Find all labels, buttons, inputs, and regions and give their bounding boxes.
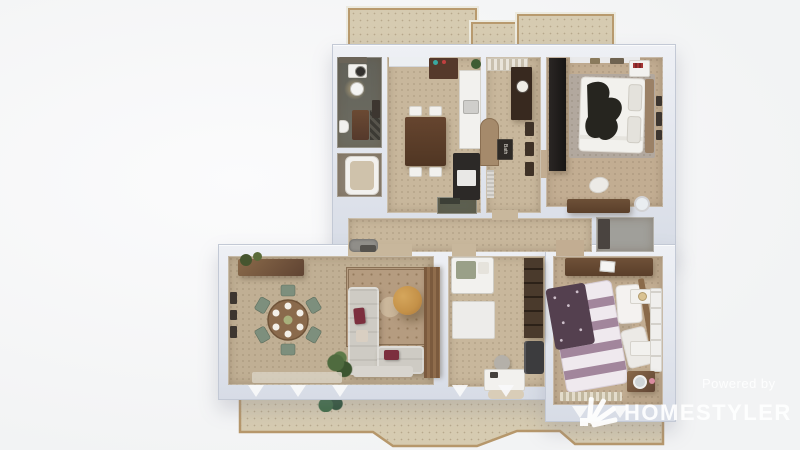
living-wall-frame [230, 310, 237, 320]
bedroom1-bed [577, 75, 654, 158]
nursery-dresser-toy [490, 372, 498, 378]
tv-partition-panel [424, 267, 440, 378]
bathtub-basin [350, 161, 374, 190]
bedroom2-wall-shelves [650, 288, 662, 372]
living-wall-frame [230, 326, 237, 338]
kitchen-window-curtain [389, 57, 430, 67]
kettle [442, 60, 446, 64]
balcony-plant [318, 398, 344, 412]
corridor-pet-bed-base [360, 245, 376, 252]
bath-sign-text: Bath [502, 144, 508, 154]
closet-gray-shoerack [598, 219, 610, 249]
living-window-rug [252, 372, 342, 383]
hall-shelf [525, 142, 534, 156]
kitchen-chair [429, 106, 442, 116]
watermark: Powered by HOMESTYLER [560, 370, 790, 440]
kitchen-chair [409, 167, 422, 177]
watermark-powered-by: Powered by [702, 376, 776, 391]
sofa-cushion [353, 307, 366, 324]
sideboard-plant [240, 254, 252, 266]
crib-blanket [456, 261, 476, 279]
kitchen-table [405, 117, 446, 166]
bedroom1-wall-art [610, 58, 624, 64]
oven-door [457, 170, 476, 186]
washer-drum [355, 66, 366, 77]
nightstand-lamp [638, 292, 647, 301]
kitchen-chair [429, 167, 442, 177]
bath-vanity [352, 110, 369, 140]
hall-clock-cabinet [511, 67, 532, 120]
doorway-hall-bedroom1 [541, 150, 547, 178]
hall-radiator [487, 170, 494, 198]
toilet [339, 120, 349, 133]
bedroom1-mirror [634, 196, 650, 212]
doorway-hall-corridor [492, 210, 518, 220]
homestyler-fan-logo [578, 392, 620, 430]
bedroom1-wall-art [590, 58, 600, 64]
bedroom2-laptop [600, 260, 616, 272]
dining-set-round [252, 284, 324, 356]
watermark-brand: HOMESTYLER [624, 400, 792, 426]
sofa-cushion [384, 350, 399, 360]
bedroom1-desk [567, 199, 630, 213]
bedroom1-wardrobe [549, 58, 566, 171]
crib-pillow [478, 262, 489, 274]
laundry-shelf [339, 57, 367, 63]
kitchen-chair [409, 106, 422, 116]
bedroom1-wall-frame [656, 96, 662, 106]
bedroom1-wall-frame [656, 112, 662, 126]
coffee-machine [433, 60, 438, 65]
bedroom2-nightstand [630, 341, 652, 356]
hanging-egg-chair [393, 286, 422, 315]
sideboard-plant [253, 252, 262, 261]
closet-green-shelf [440, 198, 460, 204]
bedroom1-headboard [645, 79, 654, 153]
bath-sign: Bath [497, 139, 513, 160]
living-wall-frame [230, 292, 237, 304]
floorplan-render: Bath [0, 0, 800, 450]
kitchen-sink [463, 100, 479, 114]
kitchen-plant [471, 59, 481, 69]
bath-wall-frame [372, 100, 380, 118]
bathroom-sink [350, 82, 364, 96]
nursery-dark-sofa [524, 341, 544, 374]
hall-shelf [525, 162, 534, 176]
bedroom1-wall-frame [656, 130, 662, 140]
wall-clock [516, 80, 529, 93]
red-books [633, 63, 643, 68]
sofa-cushion-light [356, 330, 368, 342]
nursery-wardrobe-panel [452, 301, 495, 339]
hall-shelf [525, 122, 534, 136]
nursery-dark-wardrobe [524, 258, 543, 338]
sofa-bench [353, 366, 413, 377]
